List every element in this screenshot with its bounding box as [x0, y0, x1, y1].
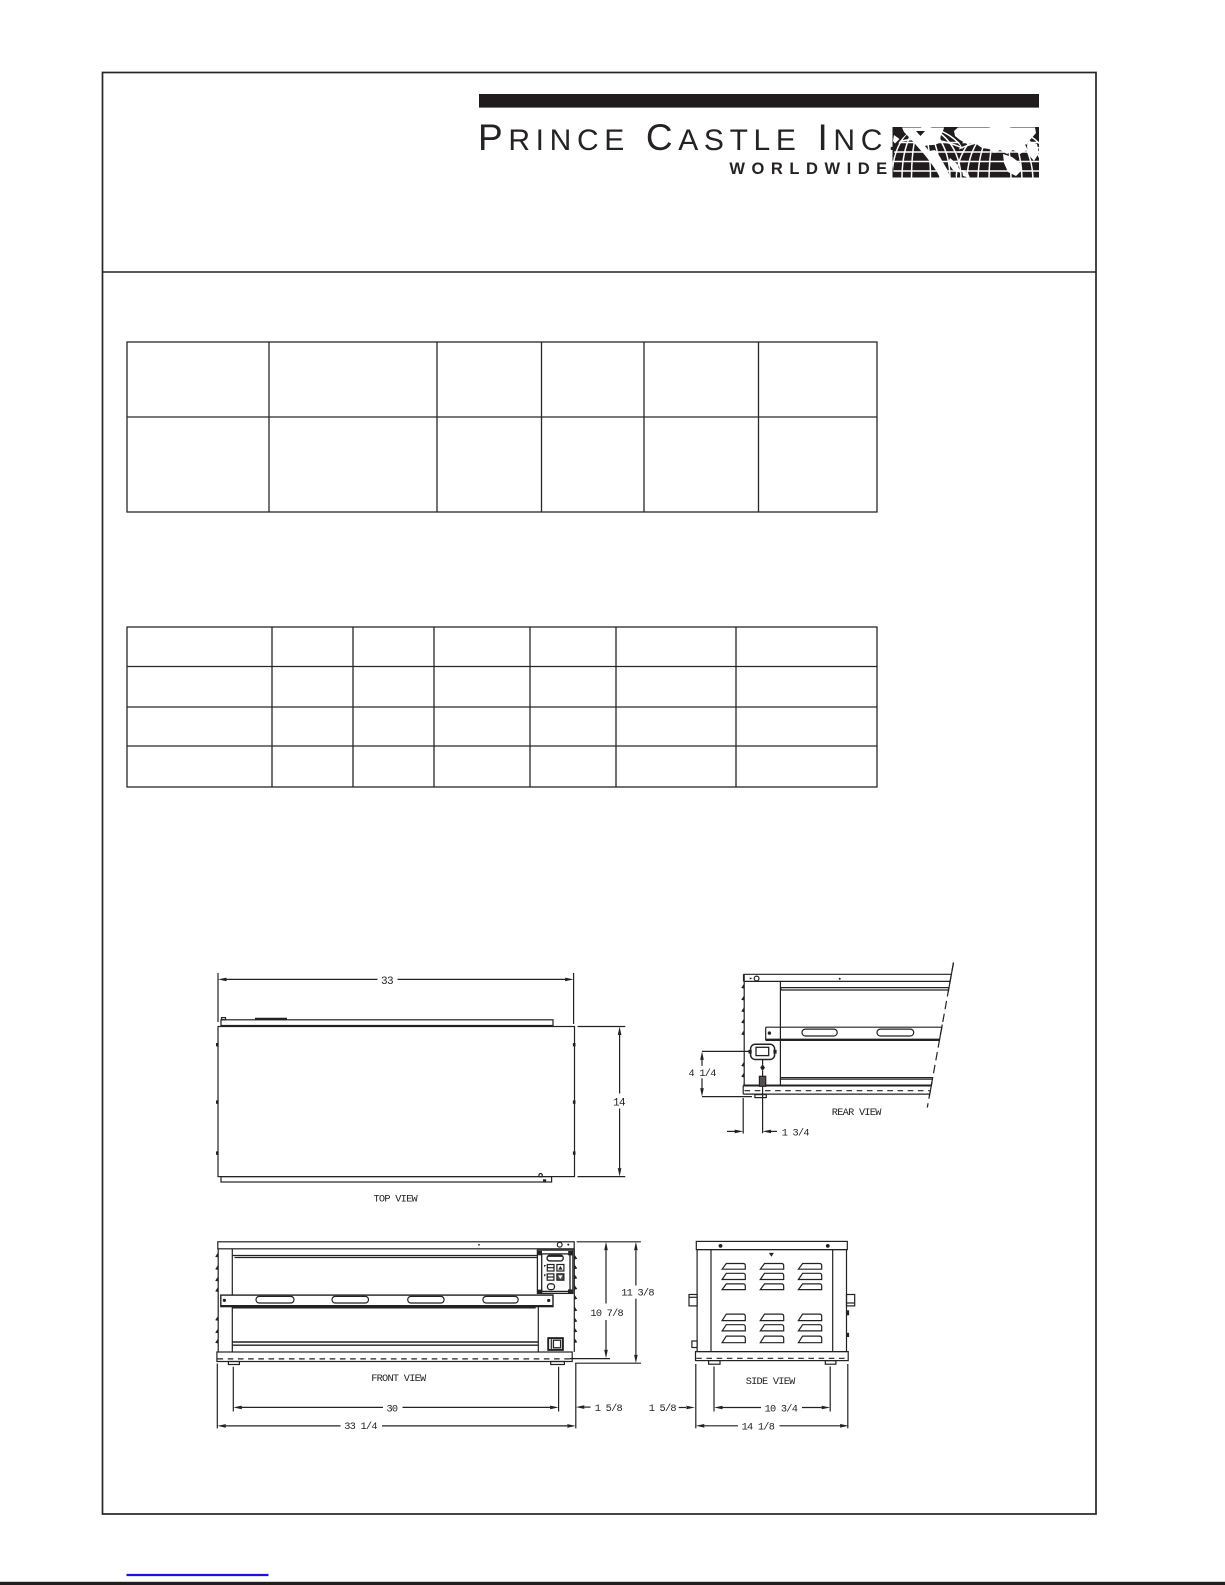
svg-text:10 3/4: 10 3/4	[765, 1403, 798, 1415]
svg-text:WORLDWIDE: WORLDWIDE	[729, 160, 893, 178]
svg-text:33: 33	[381, 976, 393, 988]
svg-text:1 5/8: 1 5/8	[649, 1403, 677, 1415]
svg-text:10 7/8: 10 7/8	[590, 1308, 623, 1320]
svg-text:FRONT VIEW: FRONT VIEW	[371, 1373, 427, 1385]
svg-text:33 1/4: 33 1/4	[344, 1421, 377, 1433]
svg-text:SIDE VIEW: SIDE VIEW	[746, 1376, 796, 1388]
svg-text:11 3/8: 11 3/8	[621, 1287, 654, 1299]
svg-text:TOP VIEW: TOP VIEW	[374, 1194, 419, 1206]
svg-text:4 1/4: 4 1/4	[689, 1068, 717, 1080]
svg-text:14: 14	[613, 1098, 626, 1110]
svg-text:14 1/8: 14 1/8	[742, 1422, 775, 1434]
svg-text:30: 30	[387, 1403, 398, 1415]
svg-text:1 5/8: 1 5/8	[595, 1403, 623, 1415]
svg-text:REAR VIEW: REAR VIEW	[832, 1107, 882, 1119]
svg-text:PRINCE CASTLE INC.: PRINCE CASTLE INC.	[478, 117, 902, 158]
svg-text:1 3/4: 1 3/4	[782, 1128, 810, 1140]
